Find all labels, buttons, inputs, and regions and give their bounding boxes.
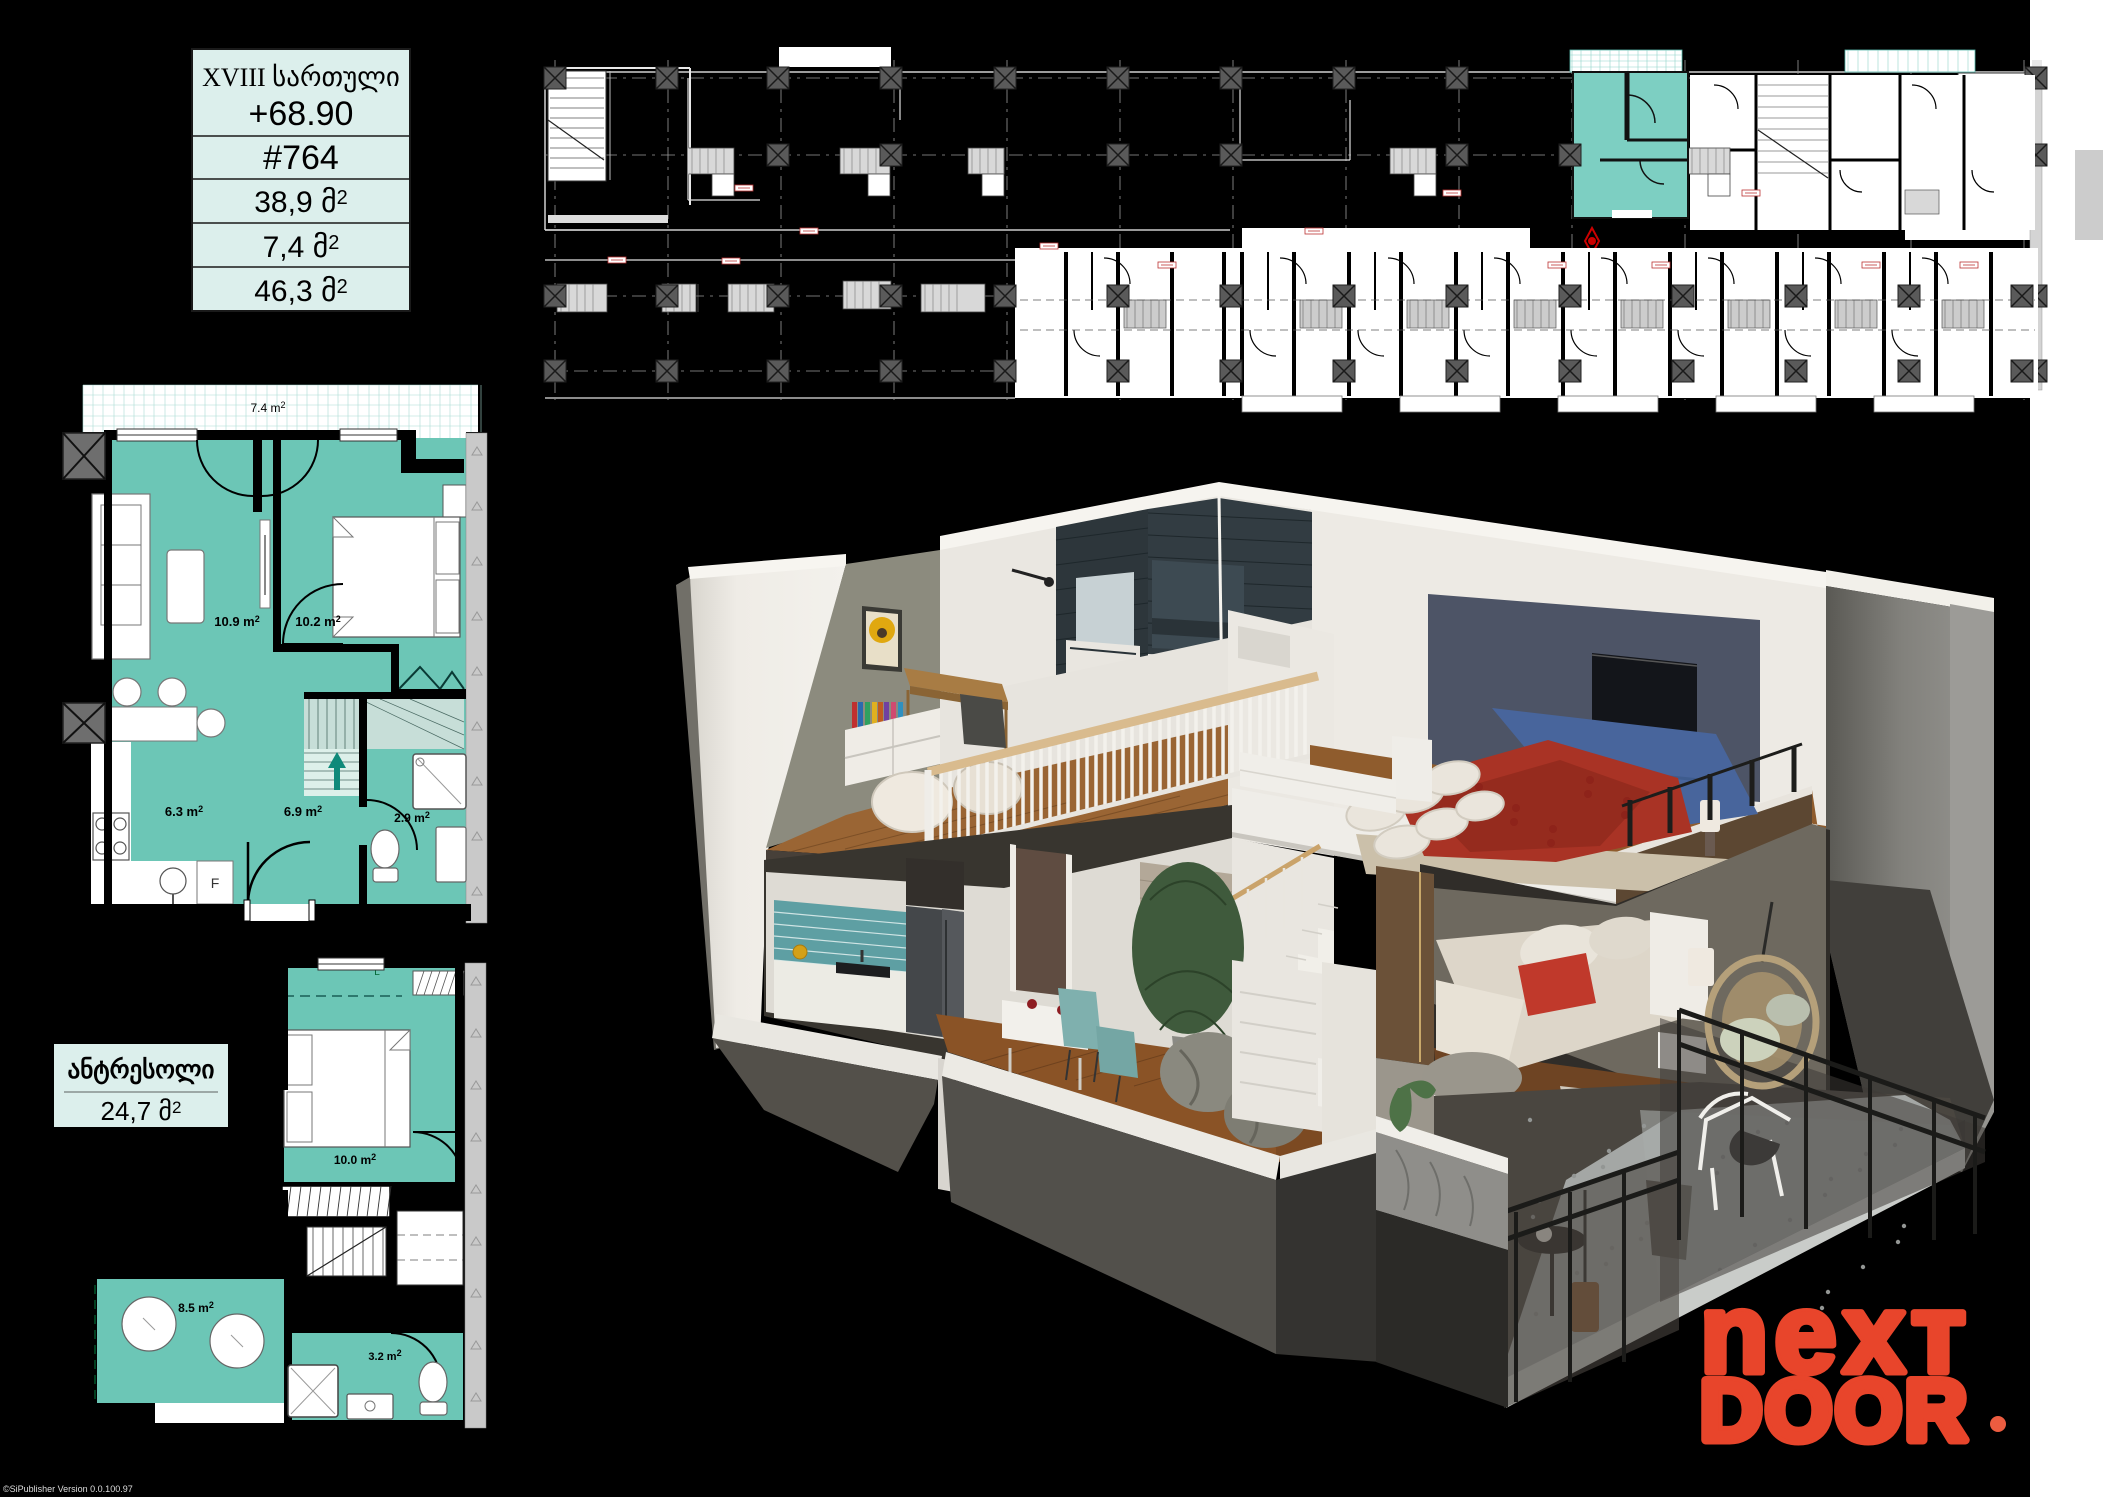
svg-text:8.5 m2: 8.5 m2 [178, 1300, 214, 1315]
svg-text:©SiPublisher Version 0.0.100.9: ©SiPublisher Version 0.0.100.97 [3, 1484, 133, 1494]
svg-text:XVIII სართული: XVIII სართული [202, 62, 400, 93]
svg-text:7,4 მ2: 7,4 მ2 [263, 231, 340, 264]
svg-text:F: F [211, 875, 220, 891]
svg-text:6.9 m2: 6.9 m2 [284, 804, 322, 819]
svg-text:2.9 m2: 2.9 m2 [394, 810, 430, 825]
svg-text:ანტრესოლი: ანტრესოლი [68, 1056, 215, 1085]
svg-text:24,7 მ2: 24,7 მ2 [101, 1096, 182, 1126]
svg-text:6.3 m2: 6.3 m2 [165, 804, 203, 819]
svg-text:+68.90: +68.90 [249, 95, 354, 133]
svg-text:DOOR: DOOR [1700, 1363, 1970, 1459]
svg-text:10.0 m2: 10.0 m2 [334, 1152, 376, 1167]
svg-text:7.4 m2: 7.4 m2 [250, 400, 285, 415]
svg-text:#764: #764 [263, 139, 339, 177]
svg-text:38,9 მ2: 38,9 მ2 [254, 186, 348, 219]
svg-text:10.2 m2: 10.2 m2 [295, 614, 341, 629]
svg-text:10.9 m2: 10.9 m2 [214, 614, 260, 629]
svg-text:46,3 მ2: 46,3 მ2 [254, 275, 348, 308]
